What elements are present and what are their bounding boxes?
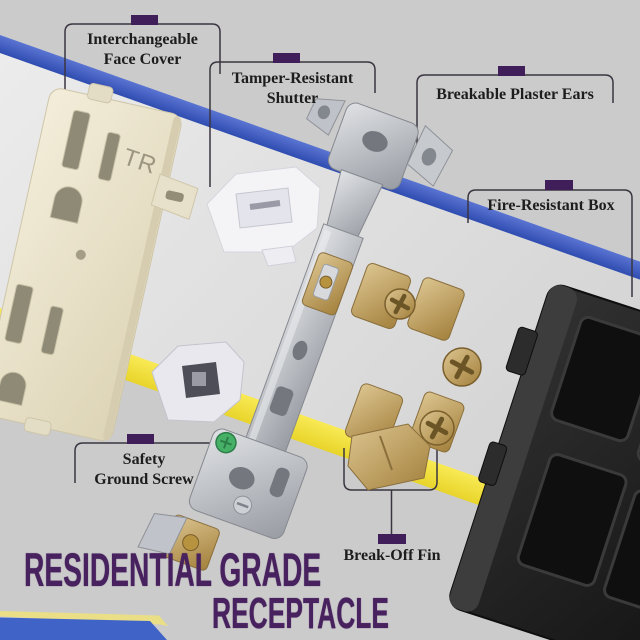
callout-ground-screw-line2: Ground Screw	[94, 471, 193, 488]
callout-face-cover-line2: Face Cover	[104, 51, 182, 68]
callout-shutter-line2: Shutter	[267, 90, 319, 107]
callout-fire-box: Fire-Resistant Box	[474, 196, 628, 216]
callout-face-cover: Interchangeable Face Cover	[70, 30, 215, 69]
plaster-ears-tab	[498, 66, 525, 76]
callout-ground-screw: Safety Ground Screw	[78, 450, 210, 489]
contact-plate	[406, 276, 466, 342]
callout-plaster-ears-line1: Breakable Plaster Ears	[436, 86, 594, 103]
mounting-strap-graphic	[138, 83, 457, 602]
face-cover-tab	[131, 15, 158, 25]
shutter-slot	[250, 203, 280, 207]
callout-break-off-fin-line1: Break-Off Fin	[343, 547, 440, 564]
callout-break-off-fin: Break-Off Fin	[320, 546, 464, 566]
shutter-tab	[273, 53, 300, 63]
product-title-line2: RECEPTACLE	[212, 589, 389, 639]
ground-screw-tab	[127, 434, 154, 444]
callout-shutter: Tamper-Resistant Shutter	[215, 69, 370, 108]
ribbon-blue-body	[0, 618, 167, 640]
shutter-upper-graphic	[207, 167, 320, 266]
shutter-lower-graphic	[152, 342, 244, 422]
shutter-slide	[192, 372, 206, 386]
break-off-fin-tab	[378, 534, 406, 544]
terminal-screw	[385, 289, 415, 319]
break-off-fin-part	[348, 424, 430, 490]
callout-ground-screw-line1: Safety	[123, 451, 166, 468]
terminal-screw	[443, 348, 481, 386]
brass-contacts-graphic	[344, 262, 481, 490]
callout-fire-box-line1: Fire-Resistant Box	[487, 197, 614, 214]
terminal-screw	[420, 411, 454, 445]
face-cover-body	[0, 86, 183, 442]
callout-plaster-ears: Breakable Plaster Ears	[420, 85, 610, 105]
callout-face-cover-line1: Interchangeable	[87, 31, 198, 48]
rear-box-graphic	[430, 277, 640, 640]
shutter-tab	[262, 246, 296, 266]
corner-ribbon	[0, 611, 168, 640]
callout-shutter-line1: Tamper-Resistant	[232, 70, 353, 87]
product-diagram: TR	[0, 0, 640, 640]
fire-box-tab	[545, 180, 573, 190]
